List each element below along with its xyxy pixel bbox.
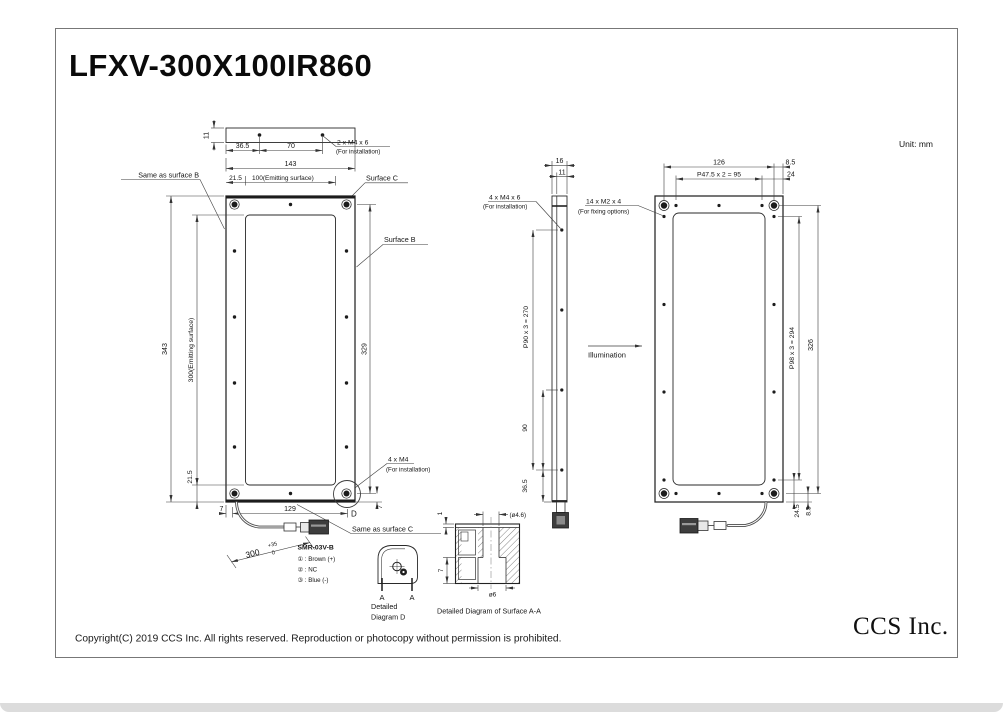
front-corner-offset-dim: 7 [377, 505, 384, 509]
aa-depth-dim: 7 [438, 568, 445, 572]
back-side-pitch-dim: P98 x 3 = 294 [789, 327, 796, 369]
top-emitting-width-dim: 100(Emitting surface) [252, 175, 314, 182]
top-hole-note: 2 x M4 x 6 [337, 140, 369, 147]
detail-aa: 1 (ø4.6) 7 ø6 Detailed Diagram of Surfac… [437, 511, 541, 615]
back-cable-connector [698, 521, 709, 531]
unit-label: Unit: mm [899, 139, 933, 149]
back-hole-note-sub: (For fixing options) [578, 209, 629, 216]
side-hole-note: 4 x M4 x 6 [489, 195, 521, 202]
connector-name: SMR-03V-B [298, 545, 334, 552]
front-hole-note: 4 x M4 [388, 457, 409, 464]
back-hole-span-dim: 326 [808, 339, 815, 351]
aa-hole-dim: (ø4.6) [510, 512, 527, 519]
side-connector [553, 502, 569, 528]
top-view-hole [258, 133, 262, 137]
side-hole-note-sub: (For installation) [483, 204, 527, 211]
section-label-a-right: A [409, 593, 414, 602]
front-emitting-height-dim: 300(Emitting surface) [188, 318, 195, 383]
front-bottom-margin-dim: 21.5 [187, 470, 194, 483]
back-panel [673, 213, 765, 485]
front-bottom-pitch-dim: 129 [284, 506, 296, 513]
front-edge-holes [233, 203, 348, 495]
back-corner-screws [659, 201, 779, 499]
side-depth-dim: 16 [556, 158, 564, 165]
cable-connector [301, 523, 310, 533]
back-cable [680, 503, 766, 534]
pin-2-label: ② : NC [298, 567, 318, 574]
top-overall-width-dim: 143 [285, 161, 297, 168]
detail-d-caption-2: Diagram D [371, 613, 405, 622]
front-cable [237, 503, 329, 535]
front-hole-note-sub: (For installation) [386, 467, 430, 474]
front-cable-offset-dim: 7 [220, 506, 224, 513]
front-view: Surface B 329 343 300(Emitting surface) … [162, 196, 441, 584]
drawing-canvas: LFXV-300X100IR860 Unit: mm 11 36.5 70 2 … [0, 0, 1003, 712]
detail-aa-caption: Detailed Diagram of Surface A-A [437, 607, 541, 616]
cable-tol-upper: +35 [267, 541, 278, 549]
aa-top-plate-dim: 1 [437, 511, 444, 515]
detail-d-shape [378, 546, 418, 584]
top-hole-offset-dim: 36.5 [236, 143, 250, 150]
top-hole-pitch-dim: 70 [287, 143, 295, 150]
aa-counterbore-dim: ø6 [489, 592, 497, 599]
side-view-body [552, 196, 567, 502]
back-hole-margin-dim: 24 [787, 172, 795, 179]
detail-d: A A Detailed Diagram D [371, 546, 418, 622]
back-width-dim: 126 [713, 160, 725, 167]
side-body-depth-dim: 11 [558, 170, 565, 177]
back-top-pitch-dim: P47.5 x 2 = 95 [697, 172, 741, 179]
top-thickness-dim: 11 [204, 132, 211, 139]
same-as-surface-c-label: Same as surface C [352, 525, 413, 534]
page-bottom-edge [0, 703, 1003, 712]
emitting-surface [246, 215, 336, 485]
top-hole-note-sub: (For installation) [336, 149, 380, 156]
section-label-a-left: A [379, 593, 384, 602]
top-edge-margin-dim: 21.5 [229, 175, 242, 182]
top-view: 11 36.5 70 2 x M4 x 6 (For installation)… [121, 120, 408, 229]
back-bottom-hole-offset-dim: 24.5 [794, 504, 801, 517]
back-bottom-corner-offset-dim: 8.5 [806, 506, 813, 516]
connector-pinout: SMR-03V-B ① : Brown (+) ② : NC ③ : Blue … [298, 545, 336, 585]
copyright-text: Copyright(C) 2019 CCS Inc. All rights re… [75, 634, 561, 645]
top-view-body [226, 128, 355, 143]
datasheet-page: LFXV-300X100IR860 Unit: mm 11 36.5 70 2 … [0, 0, 1003, 712]
front-hole-span-dim: 329 [362, 343, 369, 355]
footer: Copyright(C) 2019 CCS Inc. All rights re… [75, 613, 949, 645]
back-corner-margin-dim: 8.5 [786, 160, 796, 167]
side-holes [560, 228, 563, 471]
side-hole-gap-dim: 90 [522, 424, 529, 432]
pin-1-label: ① : Brown (+) [298, 556, 336, 563]
back-m2-holes [662, 204, 775, 495]
detail-d-caption-1: Detailed [371, 602, 397, 611]
side-hole-pitch-dim: P90 x 3 = 270 [523, 306, 530, 348]
side-bottom-offset-dim: 36.5 [522, 479, 529, 492]
back-view-body [655, 196, 783, 502]
front-corner-screws [230, 200, 351, 498]
page-title: LFXV-300X100IR860 [69, 48, 372, 83]
front-overall-height-dim: 343 [162, 343, 169, 355]
back-hole-note: 14 x M2 x 4 [586, 199, 621, 206]
cable-length-value: 300 [244, 547, 260, 560]
cable-length-dim: 300 +35 0 [244, 541, 280, 563]
detail-d-marker: D [351, 510, 357, 519]
company-logo: CCS Inc. [853, 613, 949, 640]
illumination-label: Illumination [588, 351, 626, 360]
surface-c-label: Surface C [366, 174, 398, 183]
pin-3-label: ③ : Blue (-) [298, 577, 329, 584]
same-as-surface-b-label: Same as surface B [138, 171, 199, 180]
surface-b-label: Surface B [384, 235, 416, 244]
